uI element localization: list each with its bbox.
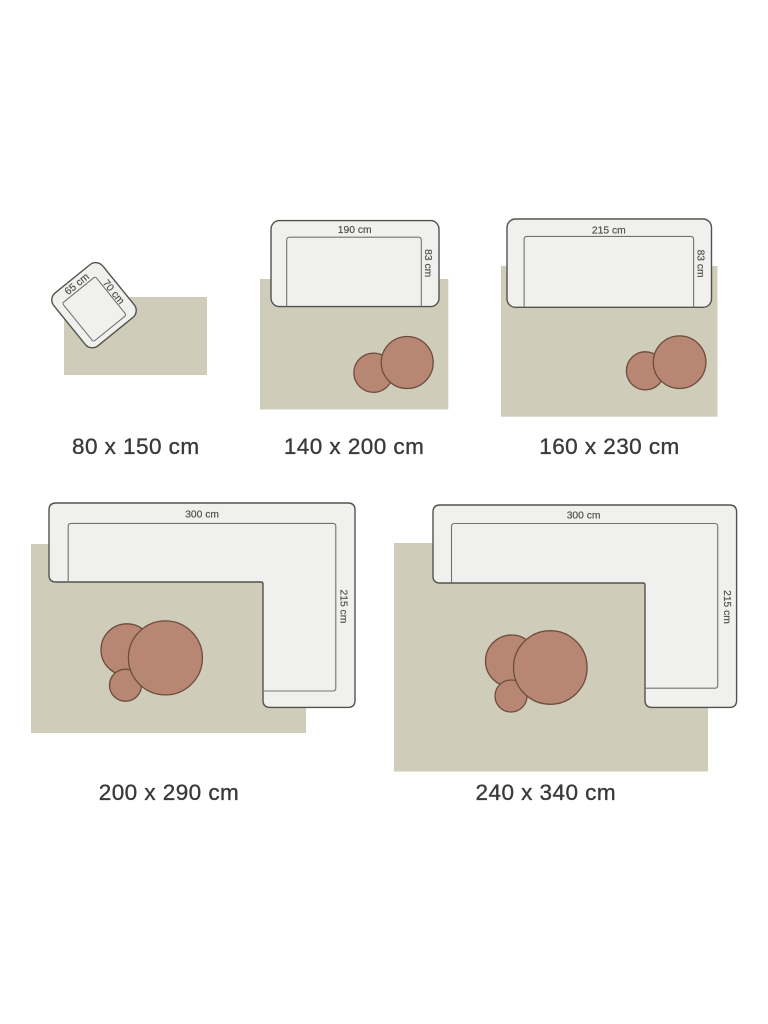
svg-text:300 cm: 300 cm: [567, 510, 601, 521]
svg-text:160 x 230 cm: 160 x 230 cm: [539, 434, 679, 459]
svg-text:200 x 290 cm: 200 x 290 cm: [99, 780, 239, 805]
svg-text:215 cm: 215 cm: [338, 590, 349, 624]
svg-text:140 x 200 cm: 140 x 200 cm: [284, 434, 424, 459]
svg-text:215 cm: 215 cm: [721, 590, 732, 624]
svg-text:190 cm: 190 cm: [338, 225, 372, 236]
svg-text:215 cm: 215 cm: [592, 225, 626, 236]
svg-text:83 cm: 83 cm: [422, 249, 433, 277]
svg-text:300 cm: 300 cm: [185, 510, 219, 521]
svg-text:80 x 150 cm: 80 x 150 cm: [72, 434, 200, 459]
svg-text:240 x 340 cm: 240 x 340 cm: [476, 780, 616, 805]
svg-text:83 cm: 83 cm: [695, 250, 706, 278]
